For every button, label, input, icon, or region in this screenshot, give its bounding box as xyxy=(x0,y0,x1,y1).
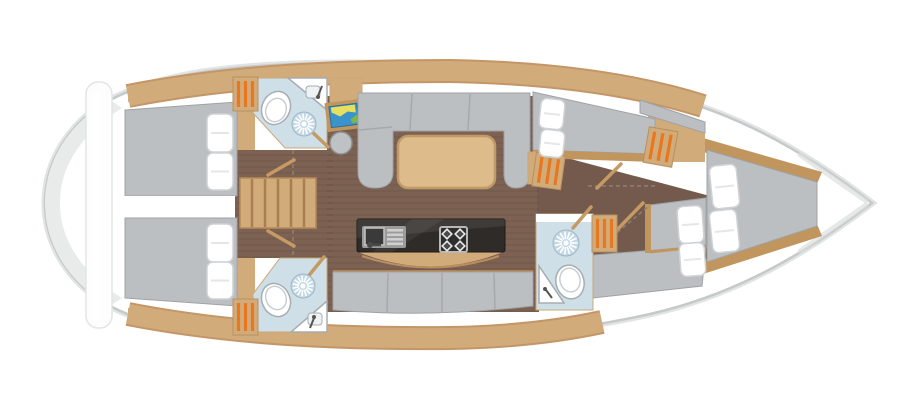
pillow xyxy=(539,129,566,158)
head2-faucet-dot xyxy=(312,315,316,319)
head3-faucet-dot xyxy=(543,287,547,291)
drainer-bar xyxy=(387,238,403,241)
pillow xyxy=(679,242,706,277)
galley-faucet-dot xyxy=(367,242,373,248)
drainer-bar xyxy=(387,229,403,232)
shower-spoke xyxy=(302,276,303,282)
louvered-locker-icon xyxy=(643,127,678,167)
nav-cabinet xyxy=(330,78,362,102)
yacht-floorplan-page: { "diagram": { "type": "sailing-yacht-in… xyxy=(0,0,900,406)
pillow xyxy=(709,209,740,254)
shower-spoke xyxy=(303,114,304,120)
shower-center xyxy=(563,240,568,245)
shower-center xyxy=(300,283,305,288)
side-settee xyxy=(333,272,533,313)
locker-slat xyxy=(237,303,240,331)
galley-sink-basin xyxy=(365,228,384,245)
shower-drain-icon xyxy=(291,274,315,298)
shower-center xyxy=(301,121,306,126)
louvered-locker-icon xyxy=(233,77,258,111)
pillow xyxy=(709,164,740,210)
floorplan-canvas xyxy=(0,0,900,406)
side-settee-seam-1 xyxy=(387,273,388,312)
nav-stool xyxy=(330,132,352,154)
head1-faucet-dot xyxy=(316,95,320,99)
locker-slat xyxy=(251,303,254,331)
shower-drain-icon xyxy=(292,112,316,136)
transom-locker-highlight xyxy=(92,90,100,320)
locker-slat xyxy=(596,219,599,248)
saloon-table xyxy=(398,136,495,188)
aft-berth-gap xyxy=(123,196,235,218)
pillow xyxy=(677,205,705,244)
head2-basin xyxy=(308,313,322,325)
drainer-bar xyxy=(387,243,403,246)
drainer-bar xyxy=(387,234,403,237)
locker-slat xyxy=(244,81,247,107)
pillow xyxy=(207,114,233,152)
locker-slat xyxy=(237,81,240,107)
pillow xyxy=(207,224,233,262)
locker-slat xyxy=(244,303,247,331)
shower-spoke xyxy=(565,232,566,239)
pillow-crease xyxy=(682,224,699,225)
louvered-locker-icon xyxy=(592,215,617,252)
shower-spoke xyxy=(303,128,304,134)
louvered-locker-icon xyxy=(233,299,258,335)
shower-drain-icon xyxy=(553,230,579,256)
pillow xyxy=(538,98,565,130)
side-settee-seam-3 xyxy=(494,273,495,310)
locker-slat xyxy=(610,219,613,248)
louvered-locker-icon xyxy=(532,152,565,190)
pillow xyxy=(207,153,233,190)
locker-slat xyxy=(251,81,254,107)
locker-slat xyxy=(603,219,606,248)
sf-berth-edge xyxy=(645,204,651,253)
galley xyxy=(357,219,505,268)
forward-head xyxy=(536,207,593,310)
shower-spoke xyxy=(302,290,303,296)
pillow-crease xyxy=(684,259,701,260)
shower-spoke xyxy=(565,247,566,254)
companionway-stairs xyxy=(240,178,316,228)
pillow xyxy=(207,262,233,299)
